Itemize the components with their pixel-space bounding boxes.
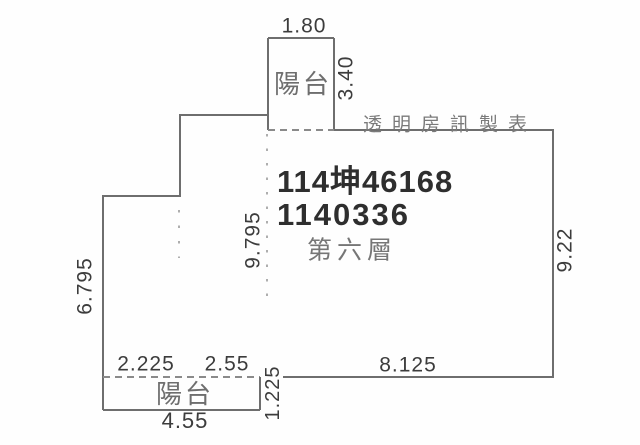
dim-bottom-segment-3: 8.125 [379,355,437,376]
dim-interior-height: 9.795 [243,211,264,269]
dim-bottom-balcony-width: 4.55 [162,410,209,432]
floor-label: 第六層 [307,239,397,264]
dim-left-height: 6.795 [75,257,96,315]
floor-plan: 透明房訊製表 114坤46168 1140336 第六層 陽台 陽台 1.80 … [0,0,640,445]
dim-right-height: 9.22 [555,228,576,273]
dim-top-balcony-width: 1.80 [282,16,327,37]
case-number: 1140336 [277,199,410,230]
case-id: 114坤46168 [277,166,453,197]
publisher-header: 透明房訊製表 [363,116,537,135]
dim-top-balcony-height: 3.40 [336,56,357,101]
top-balcony-label: 陽台 [274,71,332,97]
dim-bottom-balcony-depth: 1.225 [263,365,283,420]
bottom-balcony-label: 陽台 [156,381,214,407]
dim-bottom-segment-1: 2.225 [117,354,175,375]
dim-bottom-segment-2: 2.55 [205,354,250,375]
